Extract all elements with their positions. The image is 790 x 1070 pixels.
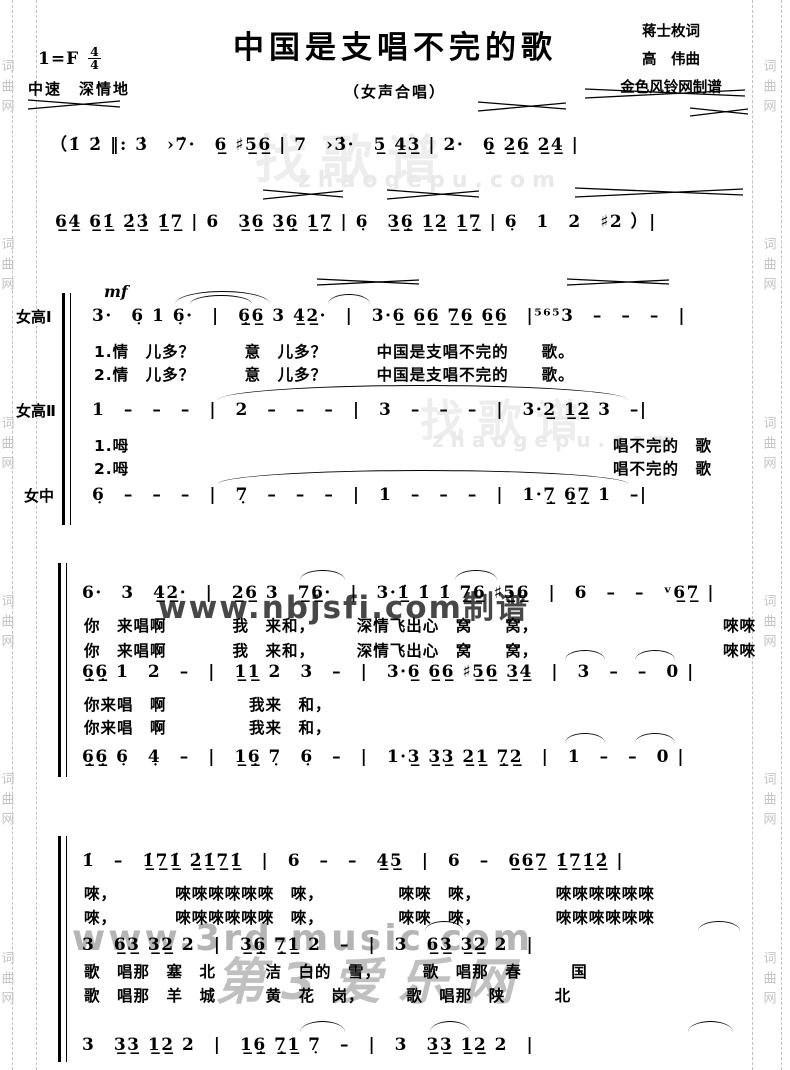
left-inner-dashed-rule bbox=[36, 0, 37, 1070]
system2-notation-line1: 6· 3 4̲2̲· | 2̲6̲ 3 7̲6̲· | 3·1̲̇ 1̇ 1̇ … bbox=[82, 578, 715, 603]
slur-arc bbox=[688, 1021, 733, 1032]
intro-notation-line-1: （1̇ 2̇ ‖: 3̇ ›7̇· 6̲ ♯5̲6̲ | 7 ›3̇· 5̲ 4… bbox=[50, 130, 579, 155]
slur-arc bbox=[455, 570, 497, 580]
system2-lyric4: 你来唱 啊 我来 和， bbox=[84, 716, 332, 738]
hairpin-dynamic bbox=[575, 184, 743, 200]
time-signature: 4 4 bbox=[88, 46, 101, 71]
hairpin-dynamic bbox=[478, 98, 566, 114]
system-bracket bbox=[58, 836, 67, 1062]
watermark-text: 词曲网 bbox=[0, 772, 16, 832]
slur-arc bbox=[300, 1021, 345, 1032]
slur-arc bbox=[430, 1021, 470, 1032]
lyric-left: 你 来唱啊 我 来和， 深情飞出心 窝 窝， bbox=[84, 614, 538, 636]
hairpin-dynamic bbox=[690, 105, 748, 118]
watermark-text: 词曲网 bbox=[759, 772, 778, 832]
left-outer-dashed-rule bbox=[12, 0, 13, 1070]
intro-notation-line-2: 6̲4̲ 6̲1̲̇ 2̲̇3̲̇ 1̲̇7̲ | 6 3̲6̲ 3̲6̣̲ 1… bbox=[55, 207, 657, 232]
voice-label-alto: 女中 bbox=[24, 485, 54, 506]
system-bracket bbox=[58, 563, 67, 777]
system3-lyric1: 唻， 唻唻唻唻唻唻 唻， 唻唻 唻， 唻唻唻唻唻唻 bbox=[84, 882, 655, 904]
hairpin-dynamic bbox=[387, 186, 479, 202]
soprano1-lyric-verse1: 1.情 儿多？ 意 儿多？ 中国是支唱不完的 歌。 bbox=[94, 340, 575, 362]
slur-arc bbox=[565, 733, 605, 743]
watermark-text: 词曲网 bbox=[759, 237, 778, 297]
hairpin-dynamic bbox=[567, 277, 669, 287]
slur-arc bbox=[300, 570, 345, 580]
system3-notation-line1: 1̇ – 1̲̇7̲1̲̇ 2̲̇1̲̇7̲1̲̇ | 6 – – 4̲5̲ |… bbox=[82, 846, 624, 871]
system3-lyric4: 歌 唱那 羊 城 黄 花 岗， 歌 唱那 陕 北 bbox=[84, 984, 571, 1006]
system2-notation-line2: 6̣̲6̣̲ 1 2 – | 1̲1̲ 2 3 – | 3·6̲ 6̲6̲ ♯5… bbox=[82, 657, 695, 682]
left-margin-watermark: 词曲网 词曲网 词曲网 词曲网 词曲网 词曲网 bbox=[0, 0, 12, 1070]
system2-lyric3: 你来唱 啊 我来 和， bbox=[84, 693, 332, 715]
soprano1-notation: 3· 6̣ 1 6̣· | 6̣̲6̲ 3 4̲2̲· | 3·6̲ 6̲6̲ … bbox=[92, 301, 686, 326]
lyric-right: 唱不完的 歌 bbox=[613, 434, 712, 456]
watermark-text: 词曲网 bbox=[759, 594, 778, 654]
system-bracket bbox=[62, 293, 71, 525]
watermark-text: 词曲网 bbox=[0, 594, 16, 654]
right-inner-dashed-rule bbox=[752, 0, 753, 1070]
hairpin-dynamic bbox=[263, 186, 343, 202]
watermark-text: 词曲网 bbox=[759, 416, 778, 476]
key-value: 1=F bbox=[38, 49, 79, 69]
hairpin-dynamic bbox=[585, 86, 745, 101]
system2-notation-line3: 6̣̲6̣̲ 6̣ 4̣ – | 1̲6̣̲ 7̣ 6̣ – | 1·3̲ 3̲… bbox=[82, 742, 685, 767]
dynamic-marking-mf: mf bbox=[104, 282, 128, 301]
right-outer-dashed-rule bbox=[781, 0, 782, 1070]
credit-lyricist: 蒋士枚词 bbox=[596, 18, 746, 46]
slur-arc bbox=[635, 733, 675, 743]
hairpin-dynamic bbox=[28, 96, 120, 112]
soprano2-lyric-verse1: 1.呣 唱不完的 歌 bbox=[94, 434, 712, 456]
system3-lyric2: 唻， 唻唻唻唻唻唻 唻， 唻唻 唻， 唻唻唻唻唻唻 bbox=[84, 906, 655, 928]
lyric-right: 唻唻 bbox=[723, 639, 756, 661]
system3-notation-line3: 3 3̲3̲ 1̲2̲ 2 | 1̲6̣̲ 7̣̲1̲ 7̣ – | 3 3̲3… bbox=[82, 1030, 534, 1055]
lyric-right: 唱不完的 歌 bbox=[613, 457, 712, 479]
voice-label-soprano1: 女高Ⅰ bbox=[16, 306, 52, 327]
watermark-text: 词曲网 bbox=[0, 951, 16, 1011]
watermark-text: 词曲网 bbox=[0, 237, 16, 297]
slur-arc bbox=[328, 294, 370, 304]
system3-lyric3: 歌 唱那 塞 北 洁 白的 雪， 歌 唱那 春 国 bbox=[84, 960, 588, 982]
meter-denominator: 4 bbox=[88, 59, 101, 71]
watermark-text: 词曲网 bbox=[759, 951, 778, 1011]
lyric-right: 唻唻 bbox=[723, 614, 756, 636]
credit-composer: 高 伟曲 bbox=[596, 46, 746, 74]
lyric-left: 1.呣 bbox=[94, 434, 129, 456]
right-margin-watermark: 词曲网 词曲网 词曲网 词曲网 词曲网 词曲网 bbox=[760, 0, 776, 1070]
hairpin-dynamic bbox=[317, 277, 419, 287]
slur-arc bbox=[698, 921, 740, 931]
system3-notation-line2: 3 6̲3̲ 3̲2̲ 2 | 3̲6̣̲ 7̣̲1̲ 2 – | 3 6̲3̲… bbox=[82, 930, 534, 955]
voice-label-soprano2: 女高Ⅱ bbox=[16, 400, 56, 421]
lyric-left: 2.呣 bbox=[94, 457, 129, 479]
score-page: 词曲网 词曲网 词曲网 词曲网 词曲网 词曲网 词曲网 词曲网 词曲网 词曲网 … bbox=[0, 0, 790, 1070]
key-signature: 1=F 4 4 bbox=[38, 46, 101, 71]
soprano1-lyric-verse2: 2.情 儿多？ 意 儿多？ 中国是支唱不完的 歌。 bbox=[94, 363, 575, 385]
system2-lyric1: 你 来唱啊 我 来和， 深情飞出心 窝 窝， 唻唻 bbox=[84, 614, 756, 636]
watermark-text: 词曲网 bbox=[0, 416, 16, 476]
